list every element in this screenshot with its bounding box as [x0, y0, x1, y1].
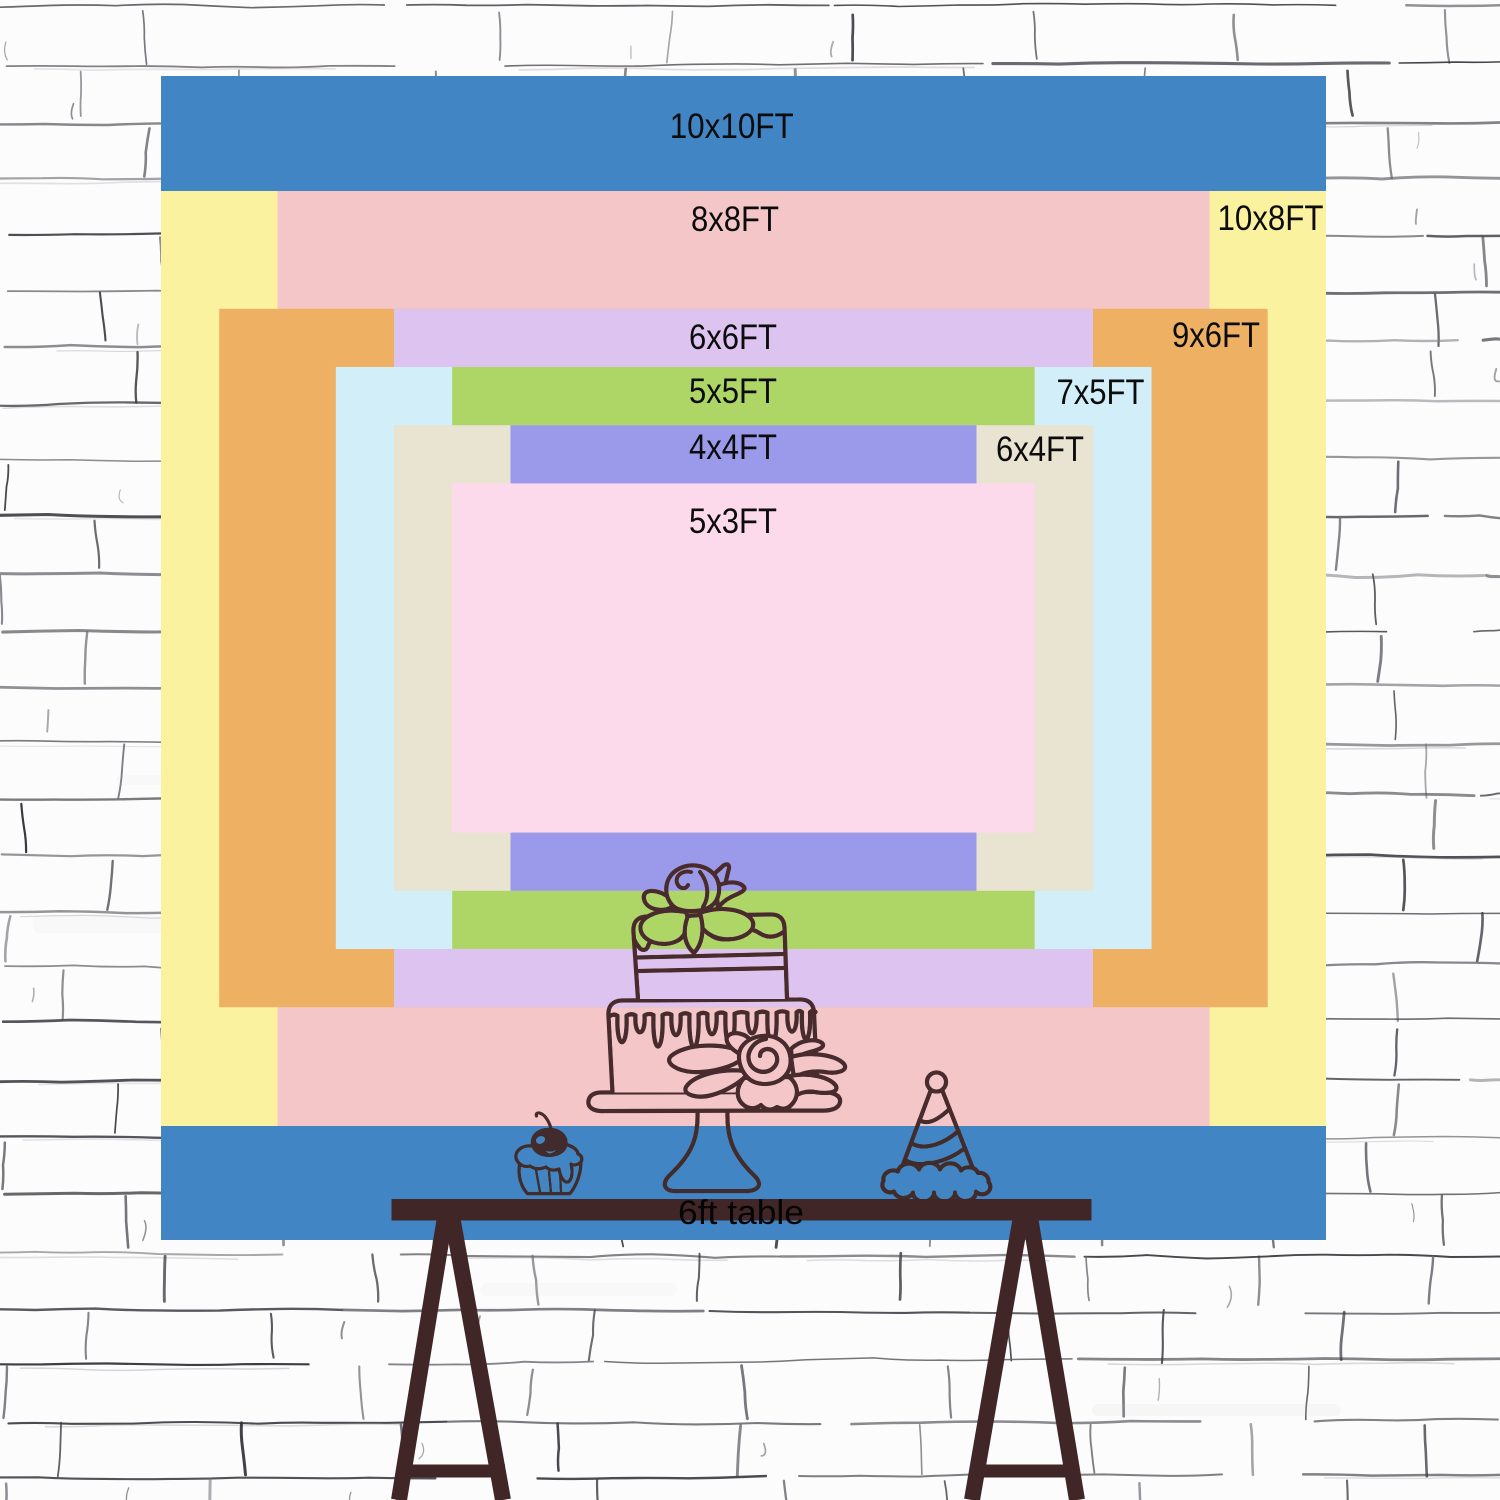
svg-text:9x6FT: 9x6FT: [1172, 316, 1260, 355]
svg-text:6x6FT: 6x6FT: [689, 318, 777, 357]
svg-text:10x10FT: 10x10FT: [670, 107, 794, 146]
svg-text:4x4FT: 4x4FT: [689, 428, 777, 467]
svg-text:5x3FT: 5x3FT: [689, 502, 777, 541]
svg-text:5x5FT: 5x5FT: [689, 372, 777, 411]
svg-text:7x5FT: 7x5FT: [1057, 373, 1145, 412]
svg-text:6ft table: 6ft table: [678, 1194, 804, 1232]
svg-text:6x4FT: 6x4FT: [996, 430, 1084, 469]
svg-text:10x8FT: 10x8FT: [1218, 199, 1324, 238]
svg-text:8x8FT: 8x8FT: [691, 200, 779, 239]
